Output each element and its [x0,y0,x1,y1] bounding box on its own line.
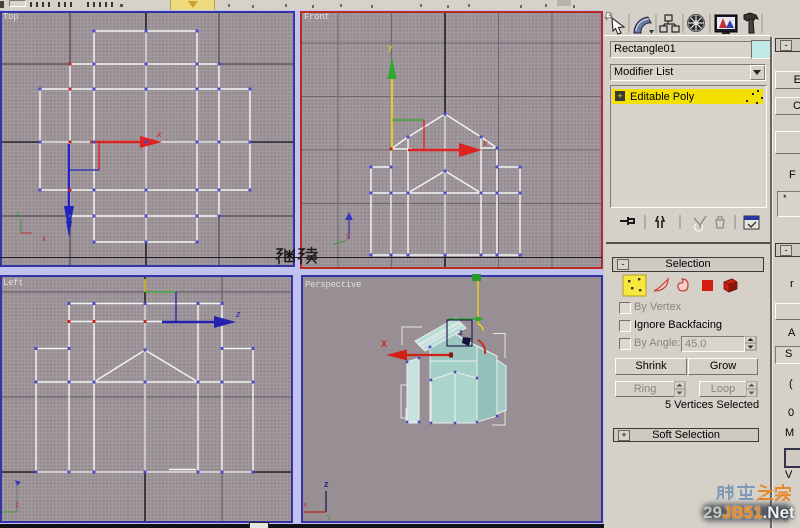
svg-text:z: z [459,328,463,337]
svg-text:x: x [156,129,162,139]
svg-text:x: x [482,138,488,148]
svg-text:x: x [303,500,307,509]
svg-text:z: z [15,500,19,509]
svg-text:z: z [235,309,241,319]
svg-text:y: y [327,512,331,521]
svg-text:x: x [42,234,46,243]
svg-text:z: z [324,479,329,489]
svg-text:y: y [346,231,350,240]
svg-text:y: y [387,42,393,52]
svg-text:y: y [16,209,20,218]
svg-text:X: X [381,339,387,349]
